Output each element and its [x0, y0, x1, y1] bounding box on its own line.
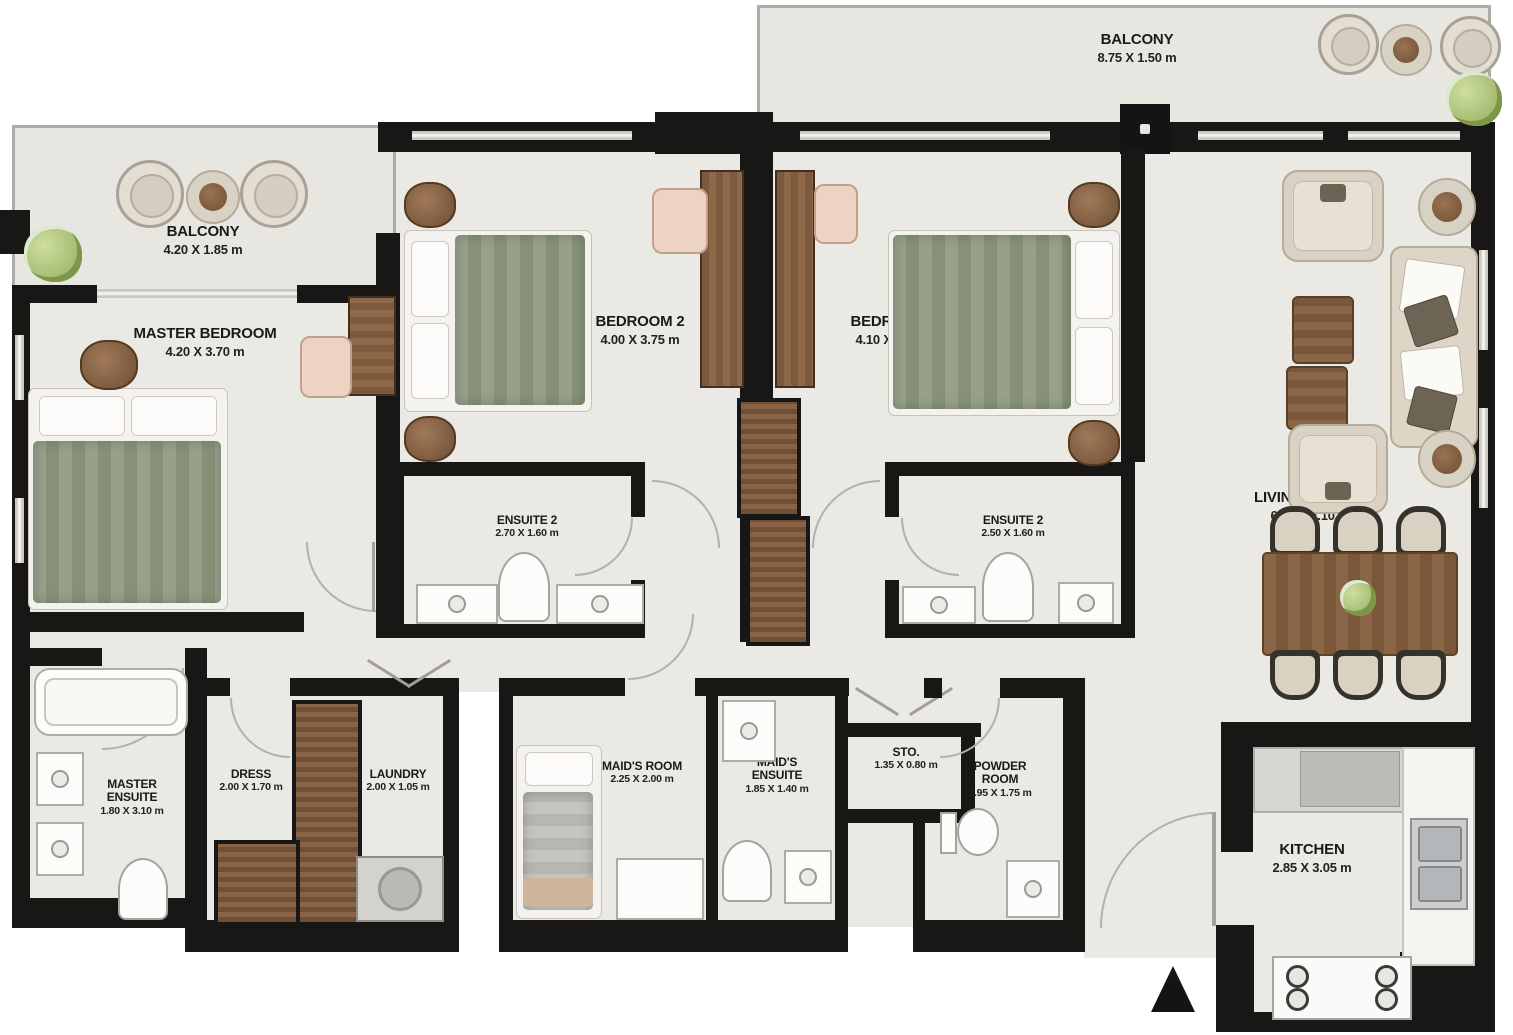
sink [1006, 860, 1060, 918]
room-name: BALCONY [167, 223, 240, 240]
nightstand [80, 340, 138, 390]
pillow [411, 323, 449, 399]
chair-seat [1453, 29, 1492, 68]
chair-seat [254, 174, 298, 218]
room-dims: 1.95 X 1.75 m [960, 788, 1040, 800]
plant [1446, 72, 1502, 126]
room-label-powder-room: POWDER ROOM 1.95 X 1.75 m [960, 760, 1040, 800]
room-label-balcony-top: BALCONY 8.75 X 1.50 m [1052, 32, 1222, 65]
wall [1121, 462, 1135, 638]
sink [36, 752, 84, 806]
plant [24, 226, 82, 282]
room-label-kitchen: KITCHEN 2.85 X 3.05 m [1222, 842, 1402, 875]
sink [36, 822, 84, 876]
wall [1221, 722, 1473, 747]
basin [930, 596, 948, 614]
chair-seat [1331, 27, 1370, 66]
room-dims: 1.80 X 3.10 m [86, 806, 178, 818]
balcony-chair [1440, 16, 1501, 77]
washing-machine [356, 856, 444, 922]
door-leaf [1212, 812, 1216, 926]
bedroom-chair [652, 188, 708, 254]
chair-seat [1338, 656, 1378, 695]
wall [390, 462, 645, 476]
chair-seat [1275, 656, 1315, 695]
kitchen-appliance [1300, 751, 1400, 807]
sink-basin [1418, 866, 1462, 902]
bedroom2-bed [404, 230, 592, 412]
basin [51, 770, 69, 788]
entrance-arrow-icon [1151, 966, 1195, 1012]
pillow [1075, 241, 1113, 319]
pillow [411, 241, 449, 317]
dress-wardrobe [292, 700, 362, 926]
room-dims: 2.70 X 1.60 m [462, 528, 592, 540]
room-name: BALCONY [1101, 31, 1174, 48]
pillow [525, 752, 593, 786]
table-top [1432, 192, 1462, 222]
closet-slats [737, 398, 801, 518]
balcony-chair [1318, 14, 1379, 75]
room-name: ENSUITE 2 [983, 513, 1043, 527]
closet-slats [746, 516, 810, 646]
wall [390, 624, 645, 638]
dresser [348, 296, 396, 396]
bedroom-chair [300, 336, 352, 398]
wall [655, 112, 773, 154]
wall [1000, 678, 1063, 698]
window [1198, 131, 1323, 140]
basin [51, 840, 69, 858]
bed-blanket [455, 235, 585, 405]
nightstand [404, 416, 456, 462]
maids-bed [516, 745, 602, 919]
door-pivot-icon [1140, 124, 1150, 134]
dining-chair [1396, 506, 1446, 556]
wardrobe [775, 170, 815, 388]
balcony-table [186, 170, 240, 224]
toilet-tank [940, 812, 957, 854]
burner [1286, 965, 1309, 988]
room-label-storage: STO. 1.35 X 0.80 m [851, 746, 961, 772]
armchair-cushion [1320, 184, 1346, 202]
wall [290, 678, 459, 696]
wall [12, 898, 207, 928]
dining-chair [1270, 650, 1320, 700]
table-plant [1340, 580, 1376, 616]
toilet [722, 840, 772, 902]
wall [706, 678, 718, 920]
bed-blanket [33, 441, 221, 603]
table-top [1393, 37, 1420, 64]
room-label-dress: DRESS 2.00 X 1.70 m [196, 768, 306, 794]
toilet [118, 858, 168, 920]
service-shaft [459, 692, 499, 952]
toilet-bowl [957, 808, 999, 856]
bedroom3-bed [888, 230, 1120, 416]
side-table [1418, 430, 1476, 488]
room-dims: 2.00 X 1.05 m [348, 782, 448, 794]
burner [1286, 988, 1309, 1011]
shower-tray [1058, 582, 1114, 624]
dining-chair [1270, 506, 1320, 556]
room-name: DRESS [231, 767, 271, 781]
wall [1121, 150, 1145, 462]
room-name: MASTER BEDROOM [133, 325, 276, 342]
chair-seat [1275, 512, 1315, 551]
sink-basin [1418, 826, 1462, 862]
wall [12, 648, 102, 666]
burner [1375, 965, 1398, 988]
armchair-cushion [1325, 482, 1351, 500]
wall [885, 624, 1135, 638]
table-top [1432, 444, 1462, 474]
window [800, 131, 1050, 140]
room-dims: 2.50 X 1.60 m [948, 528, 1078, 540]
room-label-ensuite-2-b: ENSUITE 2 2.50 X 1.60 m [948, 514, 1078, 540]
room-dims: 2.85 X 3.05 m [1222, 861, 1402, 876]
dress-wardrobe [214, 840, 300, 926]
balcony-table [1380, 24, 1432, 76]
wall [390, 462, 404, 638]
balcony-door-block [1120, 104, 1170, 154]
vanity-counter [556, 584, 644, 624]
chair-seat [130, 174, 174, 218]
room-name: STO. [893, 745, 920, 759]
bathtub [34, 668, 188, 736]
armchair [1282, 170, 1384, 262]
floor-plan: BALCONY 8.75 X 1.50 m BALCONY 4.20 X 1.8… [0, 0, 1513, 1035]
room-name: MASTER ENSUITE [107, 777, 158, 804]
drain [740, 722, 758, 740]
wall [185, 678, 230, 696]
room-name: POWDER ROOM [974, 759, 1027, 786]
nightstand [1068, 420, 1120, 466]
wall [499, 920, 840, 952]
window [15, 335, 24, 400]
sofa [1390, 246, 1478, 448]
room-label-ensuite-2-a: ENSUITE 2 2.70 X 1.60 m [462, 514, 592, 540]
chair-seat [1401, 512, 1441, 551]
nightstand [1068, 182, 1120, 228]
wall [443, 678, 459, 952]
room-name: MAID'S ROOM [602, 759, 682, 773]
balcony-sliding-window [97, 289, 297, 298]
wall [695, 678, 849, 696]
window [1479, 250, 1488, 350]
bedroom-chair [814, 184, 858, 244]
wall [1221, 722, 1253, 852]
stove [1272, 956, 1412, 1020]
accent-chair [1286, 366, 1348, 430]
basin [1024, 880, 1042, 898]
door-leaf [372, 542, 375, 612]
basin [591, 595, 609, 613]
balcony-chair [240, 160, 308, 228]
room-label-laundry: LAUNDRY 2.00 X 1.05 m [348, 768, 448, 794]
wall [924, 920, 1084, 952]
toilet [498, 552, 550, 622]
wall [631, 462, 645, 517]
toilet [982, 552, 1034, 622]
wall [513, 678, 625, 696]
wall [924, 678, 942, 698]
pillow [39, 396, 125, 436]
window [1348, 131, 1460, 140]
drain [1077, 594, 1095, 612]
room-name: LAUNDRY [370, 767, 427, 781]
balcony-chair [116, 160, 184, 228]
toilet [940, 806, 998, 856]
vanity-sink [902, 586, 976, 624]
master-bed [28, 388, 228, 610]
room-name: KITCHEN [1279, 841, 1344, 858]
room-label-master-ensuite: MASTER ENSUITE 1.80 X 3.10 m [86, 778, 178, 818]
basin [799, 868, 817, 886]
room-dims: 8.75 X 1.50 m [1052, 51, 1222, 66]
wall [885, 462, 899, 517]
room-name: BEDROOM 2 [595, 313, 684, 330]
armchair [1288, 424, 1388, 514]
dining-chair [1396, 650, 1446, 700]
nightstand [404, 182, 456, 228]
accent-chair [1292, 296, 1354, 364]
pillow [1075, 327, 1113, 405]
chair-seat [1401, 656, 1441, 695]
basin [448, 595, 466, 613]
room-name: ENSUITE 2 [497, 513, 557, 527]
bed-blanket [893, 235, 1071, 409]
dining-chair [1333, 506, 1383, 556]
window [15, 498, 24, 563]
bed-runner [523, 878, 593, 906]
room-label-balcony-left: BALCONY 4.20 X 1.85 m [118, 224, 288, 257]
burner [1375, 988, 1398, 1011]
room-dims: 1.85 X 1.40 m [735, 784, 819, 796]
room-dims: 1.35 X 0.80 m [851, 760, 961, 772]
maids-desk [616, 858, 704, 920]
dining-chair [1333, 650, 1383, 700]
shower-tray [722, 700, 776, 762]
room-dims: 4.20 X 1.85 m [118, 243, 288, 258]
chair-seat [1338, 512, 1378, 551]
sink [784, 850, 832, 904]
washer-drum [378, 867, 422, 911]
table-top [199, 183, 227, 211]
window [412, 131, 632, 140]
wall [12, 612, 304, 632]
bathtub-basin [44, 678, 178, 726]
window [1479, 408, 1488, 508]
wall [1063, 678, 1085, 952]
vanity-sink [416, 584, 498, 624]
wall [499, 678, 513, 952]
room-dims: 2.00 X 1.70 m [196, 782, 306, 794]
side-table [1418, 178, 1476, 236]
pillow [131, 396, 217, 436]
kitchen-sink [1410, 818, 1468, 910]
